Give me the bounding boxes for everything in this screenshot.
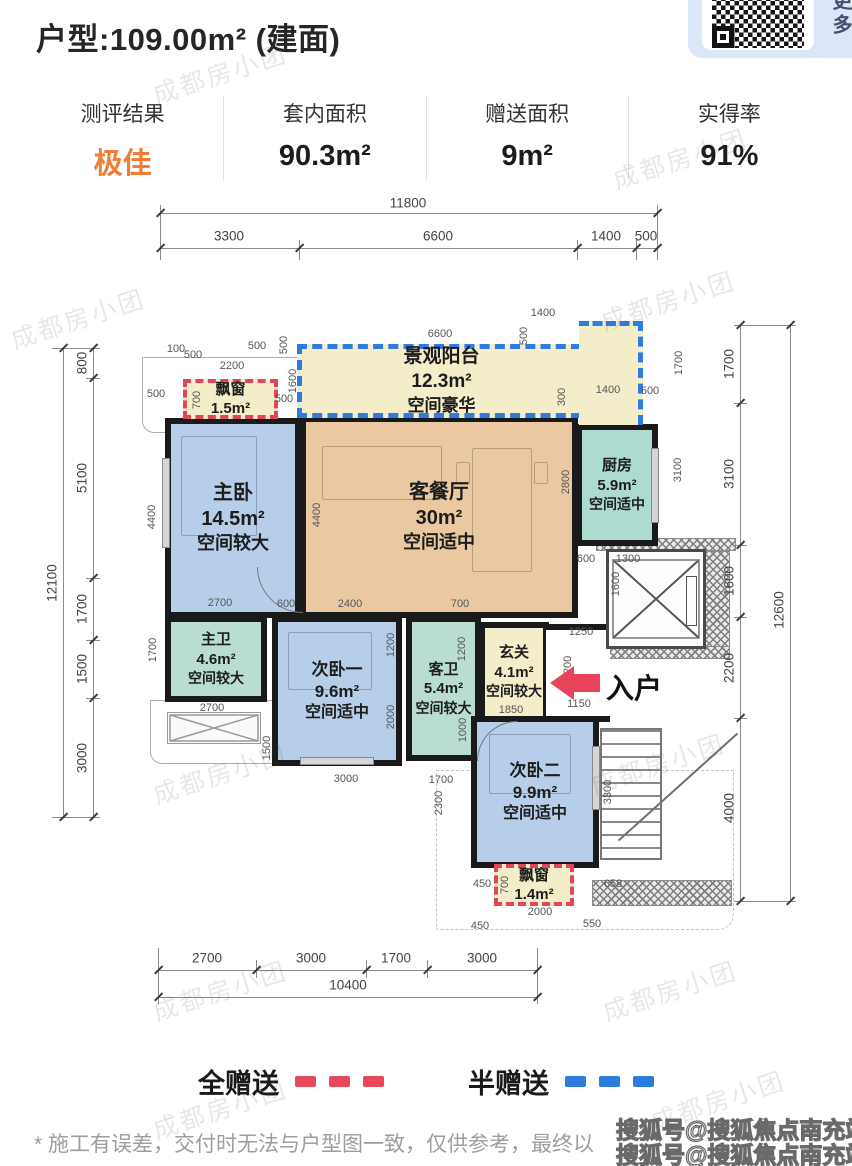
room-area: 12.3m² (411, 370, 471, 395)
dim-line (158, 997, 537, 998)
dim-label: 500 (275, 393, 293, 405)
legend-label: 全赠送 (198, 1062, 279, 1101)
dim-label: 6600 (423, 229, 453, 244)
floorplan: 客餐厅 30m² 空间适中 主卧 14.5m² 空间较大 厨房 5.9m² 空间… (0, 0, 852, 1166)
window (162, 458, 170, 548)
ac-platform (167, 712, 261, 744)
dim-label: 500 (248, 340, 266, 352)
room-name: 厨房 (602, 456, 632, 476)
dim-label: 3300 (602, 780, 614, 804)
dim-label: 1700 (722, 349, 737, 379)
dim-label: 800 (75, 352, 90, 375)
dim-label: 2700 (200, 702, 224, 714)
dim-label: 2000 (528, 906, 552, 918)
room-area: 30m² (416, 505, 463, 531)
legend-full-gift: 全赠送 (198, 1062, 384, 1101)
room-area: 9.9m² (513, 782, 557, 804)
disclaimer-text: * 施工有误差，交付时无法与户型图一致，仅供参考，最终以 (34, 1128, 594, 1158)
dim-label: 1200 (385, 633, 397, 657)
dim-label: 3300 (214, 229, 244, 244)
dim-line (158, 970, 537, 971)
dim-line (299, 240, 300, 260)
dim-label: 450 (473, 878, 491, 890)
room-bedroom-2: 次卧一 9.6m² 空间适中 (272, 616, 402, 766)
room-note: 空间较大 (486, 682, 542, 700)
dim-label: 2200 (220, 360, 244, 372)
dim-label: 1400 (591, 229, 621, 244)
dim-label: 700 (191, 391, 203, 409)
dim-label: 1400 (531, 307, 555, 319)
dim-label: 12600 (772, 591, 787, 629)
room-note: 空间适中 (589, 495, 645, 513)
room-kitchen: 厨房 5.9m² 空间适中 (576, 424, 658, 546)
dim-line (577, 240, 578, 260)
dim-label: 2800 (560, 470, 572, 494)
room-guest-bathroom: 客卫 5.4m² 空间较大 (406, 616, 481, 761)
legend-label: 半赠送 (468, 1062, 549, 1101)
room-note: 空间适中 (305, 703, 369, 724)
room-balcony-wing (579, 321, 643, 425)
dim-label: 3100 (672, 458, 684, 482)
dim-label: 550 (583, 918, 601, 930)
dim-label: 500 (518, 327, 530, 345)
dim-label: 500 (635, 229, 658, 244)
room-name: 玄关 (499, 643, 529, 663)
dim-label: 1700 (429, 774, 453, 786)
dim-label: 600 (277, 598, 295, 610)
dim-label: 4400 (311, 503, 323, 527)
room-name: 次卧二 (510, 760, 561, 782)
red-dash-icon (295, 1076, 384, 1087)
dim-label: 600 (577, 553, 595, 565)
dim-label: 500 (184, 349, 202, 361)
dim-label: 1600 (287, 369, 299, 393)
dim-label: 2200 (722, 653, 737, 683)
dim-label: 500 (278, 336, 290, 354)
dim-label: 2000 (385, 705, 397, 729)
dim-label: 4000 (722, 793, 737, 823)
dim-label: 5100 (75, 463, 90, 493)
room-area: 5.9m² (597, 476, 636, 496)
dim-label: 1500 (75, 654, 90, 684)
room-name: 次卧一 (312, 659, 363, 681)
room-balcony: 景观阳台 12.3m² 空间豪华 (297, 344, 581, 418)
dim-label: 1700 (381, 951, 411, 966)
dim-label: 3000 (334, 773, 358, 785)
dim-label: 3100 (722, 459, 737, 489)
dim-label: 11800 (390, 196, 427, 211)
dim-label: 3000 (467, 951, 497, 966)
dim-label: 2700 (192, 951, 222, 966)
dim-label: 500 (147, 388, 165, 400)
dim-label: 700 (451, 598, 469, 610)
room-note: 空间较大 (188, 669, 244, 687)
dim-label: 700 (499, 876, 511, 894)
dim-label: 1000 (457, 718, 469, 742)
blue-dash-icon (565, 1076, 654, 1087)
room-master-bathroom: 主卫 4.6m² 空间较大 (165, 616, 267, 702)
dim-label: 1700 (75, 594, 90, 624)
room-area: 14.5m² (201, 506, 264, 532)
room-name: 飘窗 (215, 380, 245, 400)
dim-label: 10400 (329, 978, 367, 993)
room-name: 景观阳台 (403, 345, 479, 370)
room-note: 空间较大 (197, 532, 269, 555)
page: 户型:109.00m² (建面) 查更多 测评结果 极佳 套内面积 90.3m²… (0, 0, 852, 1166)
legend: 全赠送 半赠送 (0, 1062, 852, 1101)
entry-arrow-icon (550, 666, 574, 700)
dim-line (93, 348, 94, 817)
entry-arrow-icon (572, 674, 600, 692)
sohu-watermark-line: 搜狐号@搜狐焦点南充站 (616, 1143, 852, 1166)
elevator-door (686, 576, 697, 626)
dim-line (63, 348, 64, 817)
room-note: 空间适中 (503, 804, 567, 825)
dim-label: 1200 (456, 637, 468, 661)
room-area: 9.6m² (315, 681, 359, 703)
dim-label: 100 (167, 343, 185, 355)
window (300, 757, 374, 765)
sohu-watermark-line: 搜狐号@搜狐焦点南充站 (616, 1118, 852, 1143)
window (651, 448, 659, 523)
room-name: 主卫 (201, 630, 231, 650)
dim-label: 1700 (147, 638, 159, 662)
dim-label: 12100 (45, 564, 60, 602)
room-living-dining: 客餐厅 30m² 空间适中 (300, 416, 578, 618)
room-area: 1.4m² (514, 885, 553, 905)
dim-label: 1700 (673, 351, 685, 375)
dim-label: 450 (471, 920, 489, 932)
sohu-watermark: 搜狐号@搜狐焦点南充站 搜狐号@搜狐焦点南充站 (616, 1118, 852, 1166)
dim-label: 2400 (338, 598, 362, 610)
dim-label: 3000 (75, 743, 90, 773)
dim-line (160, 213, 657, 214)
window (592, 746, 600, 810)
dim-label: 1250 (569, 626, 593, 638)
dim-label: 500 (641, 385, 659, 397)
dim-label: 1300 (616, 553, 640, 565)
room-name: 客餐厅 (409, 479, 469, 505)
dim-line (160, 248, 657, 249)
dim-label: 3000 (296, 951, 326, 966)
dim-label: 1600 (722, 566, 737, 596)
room-area: 4.6m² (196, 650, 235, 670)
dim-label: 300 (556, 388, 568, 406)
entry-label: 入户 (606, 667, 662, 707)
dim-line (740, 325, 741, 901)
dim-label: 6600 (428, 328, 452, 340)
legend-half-gift: 半赠送 (468, 1062, 654, 1101)
dim-line (790, 325, 791, 901)
room-note: 空间较大 (416, 699, 472, 717)
dim-label: 4400 (146, 505, 158, 529)
room-name: 客卫 (428, 660, 458, 680)
dim-label: 1400 (596, 384, 620, 396)
dim-label: 1500 (261, 736, 273, 760)
dim-label: 1600 (610, 572, 622, 596)
room-note: 空间适中 (403, 531, 475, 554)
dim-label: 2700 (208, 597, 232, 609)
room-name: 主卧 (213, 480, 253, 506)
room-area: 5.4m² (424, 679, 463, 699)
room-area: 1.5m² (211, 399, 250, 419)
dim-label: 1850 (499, 704, 523, 716)
dim-label: 658 (604, 878, 622, 890)
room-name: 飘窗 (519, 866, 549, 886)
room-note: 空间豪华 (408, 395, 476, 417)
room-area: 4.1m² (494, 663, 533, 683)
dim-label: 2300 (433, 791, 445, 815)
